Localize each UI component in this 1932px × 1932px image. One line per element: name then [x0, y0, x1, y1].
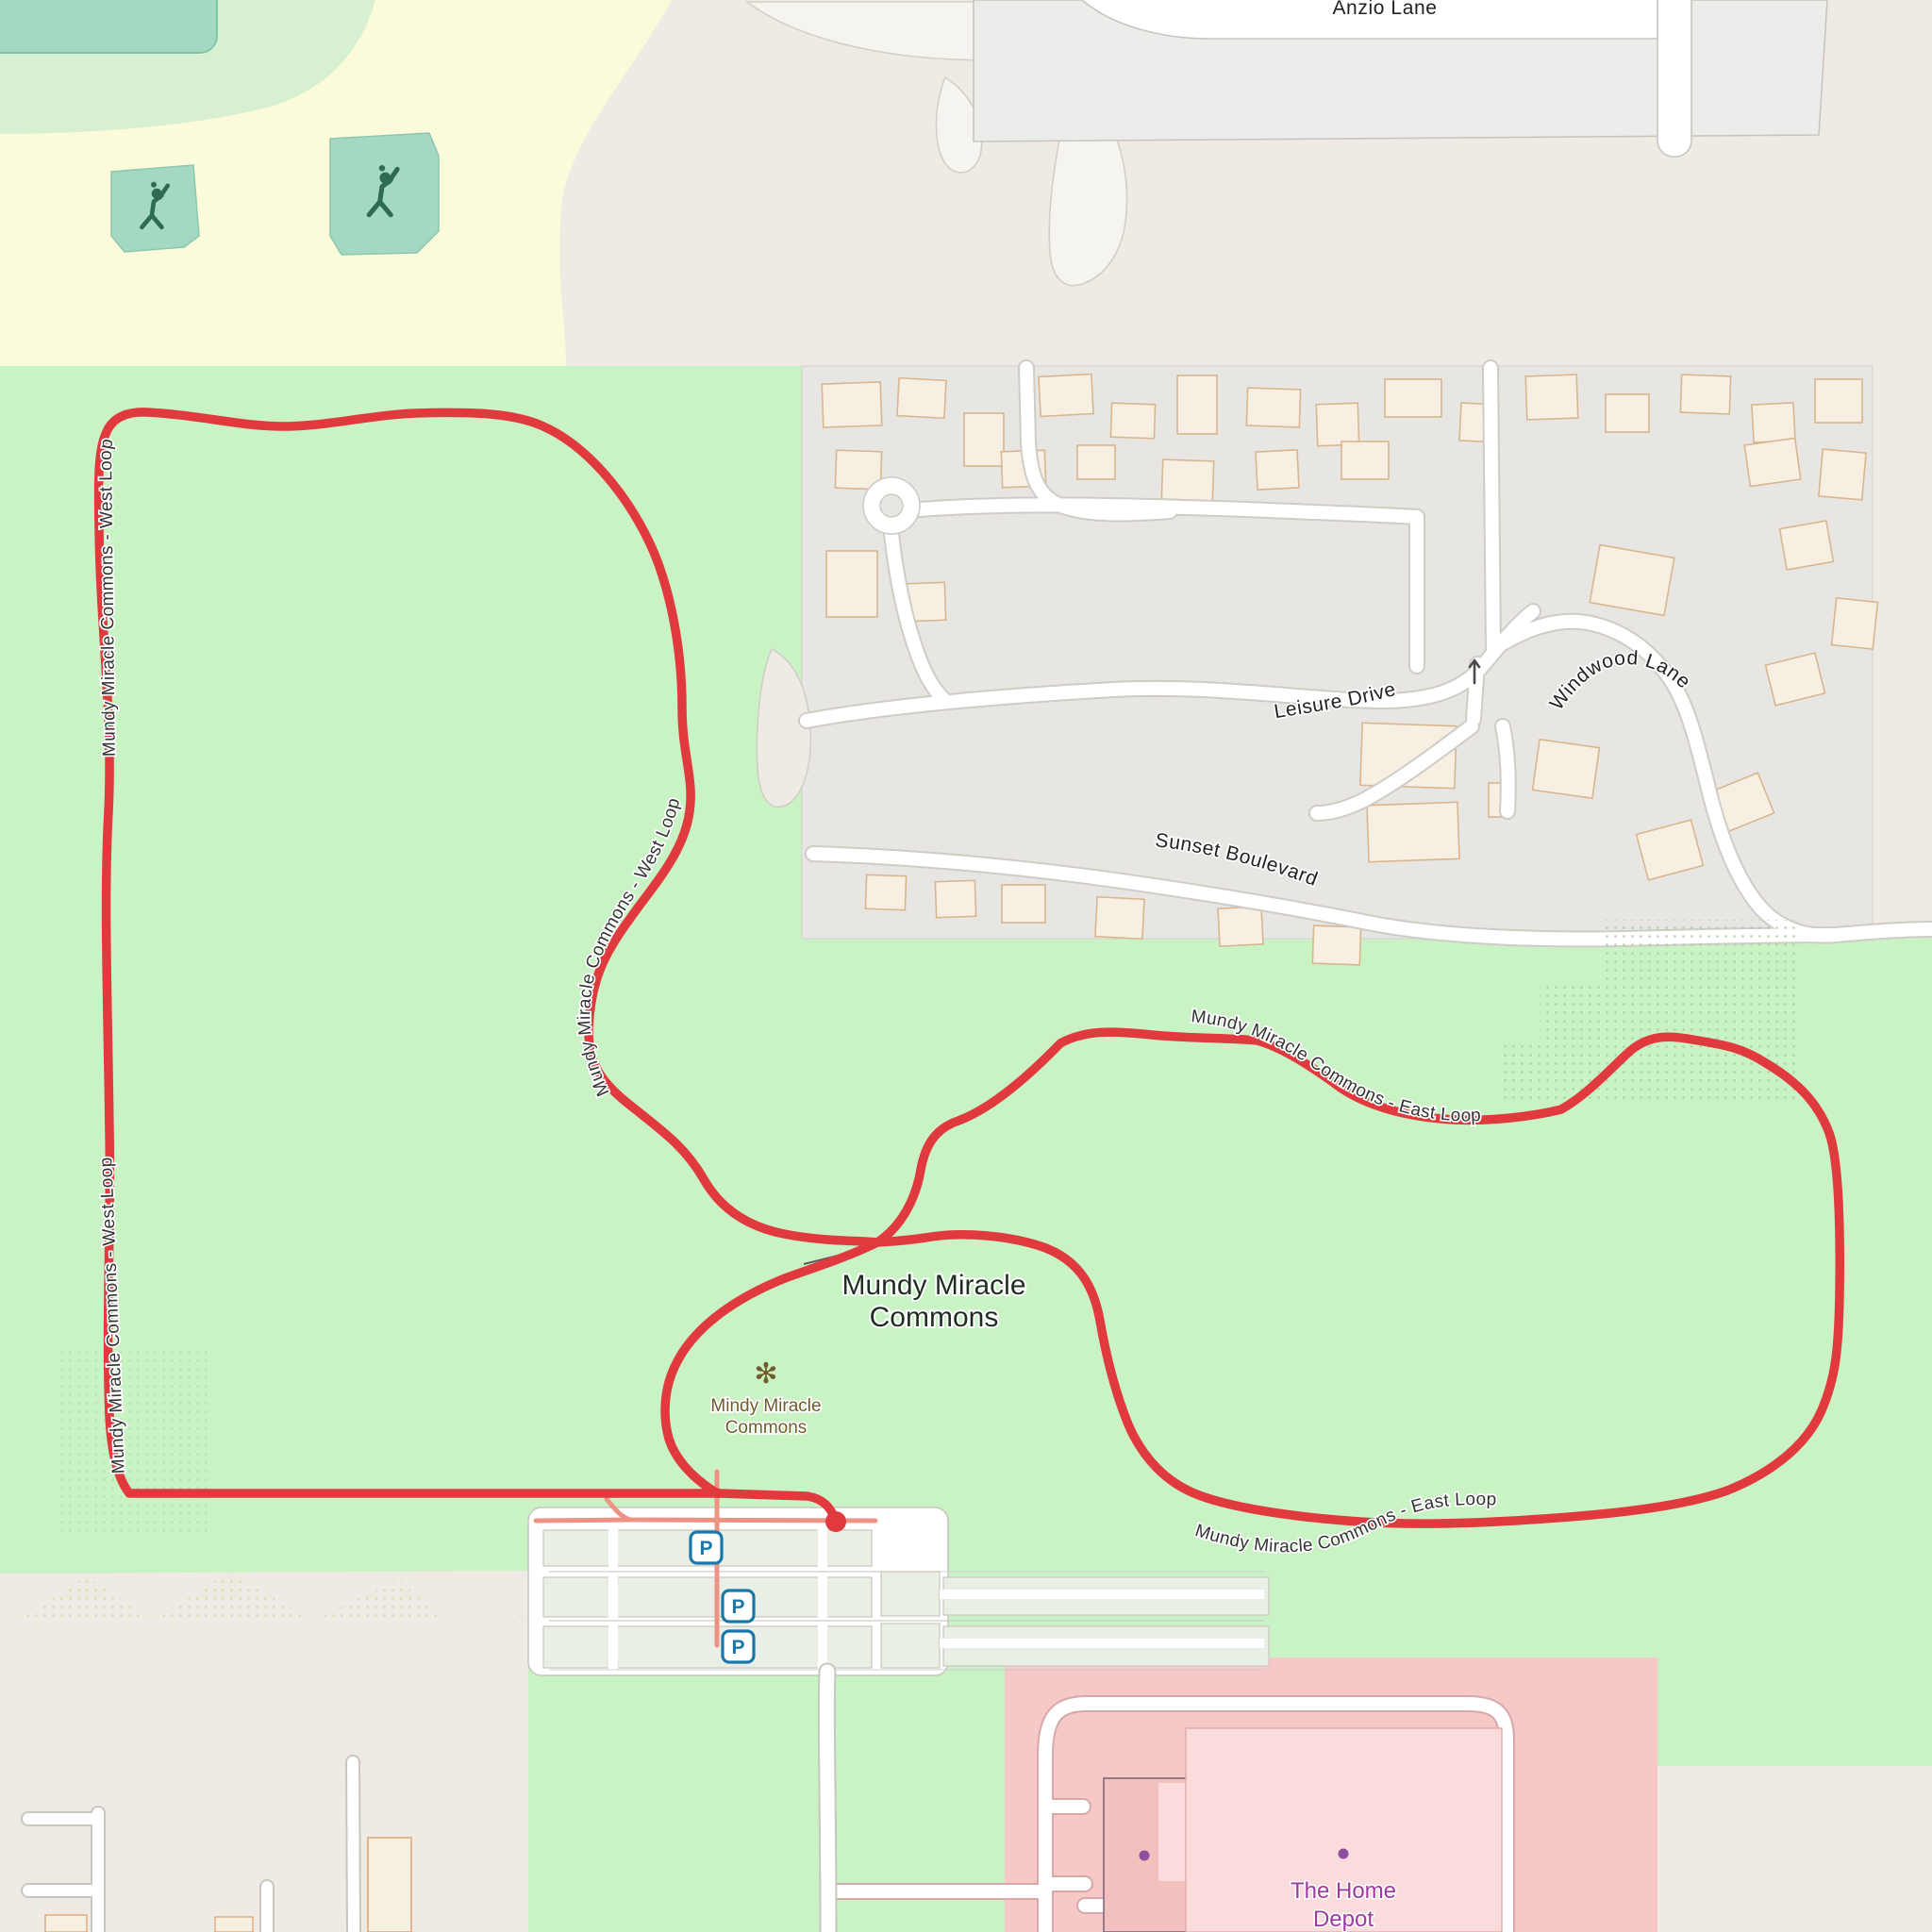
shop-dot [1140, 1851, 1150, 1861]
parking-icon: P [691, 1532, 722, 1563]
house [1316, 403, 1359, 446]
house [1832, 598, 1878, 649]
house [1525, 375, 1578, 420]
parking-icon: P [723, 1591, 754, 1622]
poi-label-park-line2: Commons [725, 1418, 808, 1438]
house [865, 874, 906, 909]
house [1177, 375, 1217, 434]
shop-dot [1339, 1849, 1349, 1859]
map-canvas[interactable]: P P P Anzio Lane Leisure Drive Windwood … [0, 0, 1932, 1932]
house [897, 378, 946, 419]
park-flower-icon: ✻ [754, 1358, 777, 1390]
poi-label-park-line1: Mindy Miracle [710, 1396, 821, 1416]
house [1815, 379, 1862, 423]
house [1312, 925, 1360, 965]
house [1819, 449, 1866, 500]
house [822, 382, 882, 427]
house [1039, 375, 1093, 417]
place-label-line2: Commons [870, 1302, 999, 1333]
house [1218, 907, 1263, 946]
poi-label-home-depot-line2: Depot [1313, 1907, 1374, 1932]
house [1744, 438, 1801, 486]
house [1680, 375, 1730, 414]
house [1256, 450, 1299, 490]
house [1606, 394, 1649, 432]
house [964, 413, 1004, 466]
house [1002, 885, 1045, 923]
trail-label-west-corner: Mundy Miracle Commons - West Loop [96, 437, 120, 757]
house [935, 880, 975, 917]
house [1533, 740, 1600, 798]
street-label-anzio-lane: Anzio Lane [1332, 0, 1437, 19]
route-endpoint-dot [825, 1511, 846, 1532]
house [826, 551, 877, 617]
house [1095, 897, 1144, 940]
map-render[interactable]: P P P Anzio Lane Leisure Drive Windwood … [0, 0, 1932, 1932]
svg-text:P: P [731, 1596, 744, 1618]
house [1161, 459, 1213, 501]
house [1385, 379, 1441, 417]
building-block-north [974, 0, 1827, 157]
house [1590, 545, 1674, 616]
house [1246, 388, 1300, 427]
house [1780, 521, 1834, 570]
house [1110, 403, 1155, 439]
pitch-field-top [0, 0, 217, 53]
house [1367, 802, 1459, 861]
poi-label-home-depot-line1: The Home [1291, 1878, 1396, 1904]
house [1752, 403, 1795, 442]
svg-text:P: P [699, 1538, 712, 1559]
parking-icon: P [723, 1631, 754, 1662]
svg-text:P: P [731, 1637, 744, 1658]
house [1341, 441, 1389, 479]
house [1077, 445, 1115, 479]
park-exit-road [826, 1672, 828, 1932]
place-label-line1: Mundy Miracle [841, 1270, 1025, 1301]
